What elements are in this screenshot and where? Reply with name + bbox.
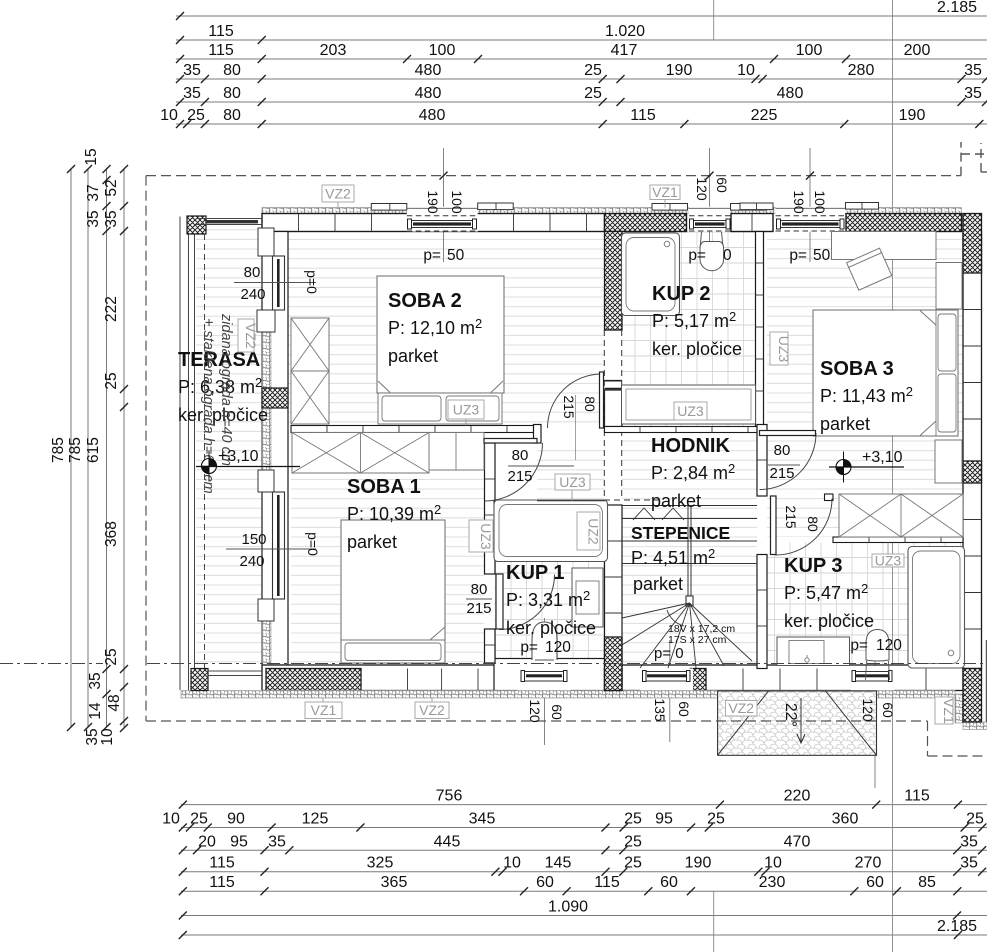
svg-text:10: 10	[737, 62, 755, 79]
svg-text:785: 785	[67, 437, 84, 463]
svg-text:60: 60	[549, 704, 565, 720]
svg-text:P: 5,47 m2: P: 5,47 m2	[784, 581, 868, 603]
svg-text:48: 48	[106, 694, 123, 711]
svg-text:KUP 2: KUP 2	[652, 283, 711, 305]
svg-text:2.185: 2.185	[937, 918, 977, 935]
svg-text:0: 0	[723, 247, 732, 264]
svg-text:115: 115	[209, 874, 235, 891]
svg-text:UZ2: UZ2	[586, 518, 602, 545]
svg-text:52: 52	[103, 179, 120, 196]
svg-text:p=: p=	[688, 247, 706, 264]
svg-text:10: 10	[764, 855, 782, 872]
svg-text:10: 10	[99, 728, 116, 746]
svg-text:120: 120	[860, 698, 876, 722]
svg-text:25: 25	[584, 62, 602, 79]
svg-text:115: 115	[208, 42, 234, 59]
svg-text:UZ3: UZ3	[559, 474, 586, 490]
svg-text:480: 480	[415, 85, 442, 102]
svg-text:ker. pločice: ker. pločice	[652, 339, 742, 359]
svg-text:+3,10: +3,10	[862, 449, 903, 466]
svg-text:VZ1: VZ1	[311, 702, 337, 718]
svg-text:15: 15	[83, 148, 100, 165]
svg-text:p=0: p=0	[304, 270, 320, 294]
svg-text:215: 215	[769, 465, 794, 482]
svg-text:UZ3: UZ3	[478, 523, 494, 550]
svg-text:zidana ograda h=40 cm: zidana ograda h=40 cm	[218, 313, 234, 466]
svg-text:22°: 22°	[782, 703, 799, 727]
svg-text:VZ2: VZ2	[728, 700, 754, 716]
svg-text:145: 145	[545, 855, 572, 872]
svg-text:280: 280	[848, 62, 875, 79]
svg-text:20: 20	[198, 833, 216, 850]
svg-text:368: 368	[103, 521, 120, 547]
svg-text:+3,10: +3,10	[218, 448, 259, 465]
svg-text:480: 480	[777, 85, 804, 102]
svg-text:100: 100	[429, 42, 456, 59]
svg-text:10: 10	[160, 107, 178, 124]
svg-text:p=: p=	[423, 247, 441, 264]
svg-text:222: 222	[103, 296, 120, 322]
svg-text:50: 50	[813, 247, 831, 264]
svg-text:25: 25	[584, 85, 602, 102]
svg-text:VZ2: VZ2	[419, 702, 445, 718]
svg-text:10: 10	[503, 855, 521, 872]
svg-text:100: 100	[796, 42, 823, 59]
svg-text:35: 35	[960, 833, 978, 850]
svg-text:190: 190	[666, 62, 693, 79]
svg-text:35: 35	[964, 85, 982, 102]
svg-text:35: 35	[960, 855, 978, 872]
svg-text:60: 60	[660, 874, 678, 891]
svg-text:240: 240	[239, 553, 264, 570]
svg-text:35: 35	[183, 62, 201, 79]
svg-text:1.090: 1.090	[548, 899, 588, 916]
svg-text:756: 756	[436, 788, 463, 805]
svg-text:120: 120	[527, 699, 543, 723]
svg-text:125: 125	[302, 811, 329, 828]
svg-text:80: 80	[582, 396, 598, 412]
svg-text:785: 785	[50, 437, 67, 463]
svg-text:25: 25	[103, 648, 120, 665]
svg-text:25: 25	[966, 811, 984, 828]
svg-text:100: 100	[449, 190, 465, 214]
svg-text:P: 4,51 m2: P: 4,51 m2	[631, 546, 715, 568]
svg-text:35: 35	[268, 833, 286, 850]
svg-text:365: 365	[381, 874, 408, 891]
svg-text:80: 80	[805, 516, 821, 532]
svg-text:135: 135	[652, 698, 668, 722]
svg-text:UZ3: UZ3	[453, 401, 480, 417]
svg-text:VZ1: VZ1	[941, 698, 957, 724]
svg-text:25: 25	[103, 372, 120, 389]
svg-text:25: 25	[624, 855, 642, 872]
svg-text:60: 60	[866, 874, 884, 891]
svg-text:P: 11,43 m2: P: 11,43 m2	[820, 384, 913, 406]
svg-text:p= 0: p= 0	[654, 645, 684, 662]
svg-text:parket: parket	[347, 532, 397, 552]
svg-text:80: 80	[774, 442, 791, 459]
svg-text:25: 25	[624, 811, 642, 828]
svg-text:360: 360	[832, 811, 859, 828]
svg-text:p=: p=	[520, 639, 538, 656]
svg-text:P: 10,39 m2: P: 10,39 m2	[347, 502, 441, 524]
svg-text:p=: p=	[850, 637, 868, 654]
svg-text:115: 115	[208, 23, 234, 40]
svg-text:190: 190	[791, 190, 807, 214]
svg-text:80: 80	[223, 62, 241, 79]
svg-text:parket: parket	[651, 491, 701, 511]
svg-text:UZ3: UZ3	[776, 336, 792, 363]
svg-text:95: 95	[655, 811, 673, 828]
svg-text:115: 115	[630, 107, 656, 124]
svg-text:60: 60	[676, 701, 692, 717]
svg-text:325: 325	[367, 855, 394, 872]
svg-text:120: 120	[545, 639, 571, 656]
svg-text:SOBA 2: SOBA 2	[388, 290, 462, 312]
svg-text:VZ1: VZ1	[652, 184, 678, 200]
svg-text:VZ2: VZ2	[325, 185, 351, 201]
svg-text:215: 215	[561, 395, 577, 419]
svg-text:14: 14	[87, 702, 104, 720]
svg-text:SOBA 1: SOBA 1	[347, 476, 421, 498]
svg-text:P: 3,31 m2: P: 3,31 m2	[506, 588, 590, 610]
svg-text:240: 240	[240, 286, 265, 303]
svg-text:225: 225	[751, 107, 778, 124]
svg-text:85: 85	[918, 874, 936, 891]
svg-text:100: 100	[812, 190, 828, 214]
svg-text:KUP 1: KUP 1	[506, 562, 565, 584]
svg-text:80: 80	[223, 107, 241, 124]
svg-text:90: 90	[227, 811, 245, 828]
svg-text:80: 80	[244, 264, 261, 281]
svg-text:215: 215	[466, 600, 491, 617]
svg-text:P: 2,84 m2: P: 2,84 m2	[651, 461, 735, 483]
svg-text:200: 200	[904, 42, 931, 59]
svg-text:35: 35	[964, 62, 982, 79]
svg-text:115: 115	[209, 855, 235, 872]
svg-text:150: 150	[241, 531, 266, 548]
svg-text:60: 60	[536, 874, 554, 891]
svg-text:HODNIK: HODNIK	[651, 435, 730, 457]
svg-text:80: 80	[512, 447, 529, 464]
svg-text:60: 60	[714, 177, 730, 193]
svg-text:203: 203	[320, 42, 347, 59]
svg-text:KUP 3: KUP 3	[784, 555, 843, 577]
svg-text:50: 50	[447, 247, 465, 264]
svg-text:P: 5,17 m2: P: 5,17 m2	[652, 309, 736, 331]
svg-text:190: 190	[685, 855, 712, 872]
svg-text:2.185: 2.185	[937, 0, 977, 16]
svg-text:SOBA 3: SOBA 3	[820, 358, 894, 380]
svg-text:1.020: 1.020	[605, 23, 645, 40]
svg-text:445: 445	[434, 833, 461, 850]
svg-text:UZ3: UZ3	[677, 403, 704, 419]
svg-text:25: 25	[190, 811, 208, 828]
svg-text:STEPENICE: STEPENICE	[631, 523, 730, 543]
svg-text:480: 480	[419, 107, 446, 124]
svg-text:UZ3: UZ3	[875, 552, 902, 568]
svg-text:115: 115	[904, 788, 930, 805]
svg-text:80: 80	[223, 85, 241, 102]
svg-text:35: 35	[85, 210, 102, 227]
svg-text:615: 615	[85, 437, 102, 463]
svg-text:25: 25	[624, 833, 642, 850]
svg-text:470: 470	[784, 833, 811, 850]
svg-text:25: 25	[187, 107, 205, 124]
svg-text:parket: parket	[633, 574, 683, 594]
svg-text:p=: p=	[789, 247, 807, 264]
svg-text:35: 35	[183, 85, 201, 102]
svg-text:VZ2: VZ2	[243, 323, 259, 349]
svg-text:115: 115	[594, 874, 620, 891]
svg-text:ker. pločice: ker. pločice	[784, 611, 874, 631]
svg-text:220: 220	[784, 788, 811, 805]
svg-text:215: 215	[507, 468, 532, 485]
svg-text:80: 80	[471, 581, 488, 598]
svg-text:P: 12,10 m2: P: 12,10 m2	[388, 316, 482, 338]
svg-text:345: 345	[469, 811, 496, 828]
svg-text:60: 60	[880, 702, 896, 718]
svg-text:95: 95	[230, 833, 248, 850]
svg-text:ker. pločice: ker. pločice	[506, 618, 596, 638]
svg-text:10: 10	[162, 811, 180, 828]
svg-text:25: 25	[707, 811, 725, 828]
svg-text:270: 270	[855, 855, 882, 872]
svg-text:35: 35	[87, 672, 104, 689]
svg-text:190: 190	[899, 107, 926, 124]
svg-text:120: 120	[694, 177, 710, 201]
svg-text:417: 417	[611, 42, 638, 59]
svg-text:215: 215	[783, 505, 799, 529]
svg-text:p=0: p=0	[305, 532, 321, 556]
svg-text:parket: parket	[820, 414, 870, 434]
svg-text:37: 37	[85, 184, 102, 201]
svg-text:parket: parket	[388, 346, 438, 366]
svg-text:120: 120	[876, 637, 902, 654]
svg-text:190: 190	[425, 190, 441, 214]
svg-text:480: 480	[415, 62, 442, 79]
svg-text:35: 35	[103, 210, 120, 227]
svg-text:230: 230	[759, 874, 786, 891]
